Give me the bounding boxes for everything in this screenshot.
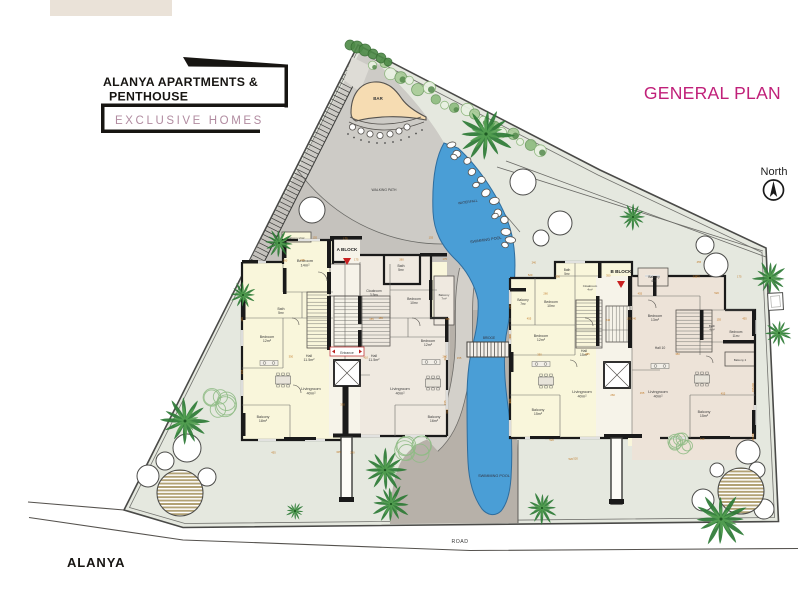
svg-text:240: 240 <box>350 450 355 454</box>
svg-text:18m²: 18m² <box>259 419 268 423</box>
svg-text:305: 305 <box>240 369 244 374</box>
svg-text:BRIDGE: BRIDGE <box>483 336 495 340</box>
svg-text:A BLOCK: A BLOCK <box>337 247 358 252</box>
svg-text:ALANYA APARTMENTS &: ALANYA APARTMENTS & <box>103 75 258 89</box>
svg-text:455: 455 <box>742 316 747 320</box>
svg-text:175: 175 <box>343 236 348 240</box>
svg-text:240: 240 <box>300 258 305 262</box>
svg-text:Entrance: Entrance <box>340 351 354 355</box>
svg-text:155: 155 <box>429 235 434 239</box>
svg-text:GENERAL PLAN: GENERAL PLAN <box>644 83 781 103</box>
svg-text:14m²: 14m² <box>300 263 310 268</box>
svg-text:EXCLUSIVE HOMES: EXCLUSIVE HOMES <box>115 115 264 127</box>
svg-text:455: 455 <box>527 317 532 321</box>
svg-text:260: 260 <box>399 257 404 261</box>
svg-text:PENTHOUSE: PENTHOUSE <box>109 90 188 104</box>
svg-text:350: 350 <box>606 273 611 277</box>
svg-text:240: 240 <box>532 261 537 265</box>
svg-text:305: 305 <box>585 352 590 356</box>
svg-text:Hall 10: Hall 10 <box>655 346 666 350</box>
svg-text:40m²: 40m² <box>395 391 405 396</box>
svg-text:10m²: 10m² <box>547 304 556 308</box>
svg-text:ALANYA: ALANYA <box>67 555 125 570</box>
svg-text:175: 175 <box>354 257 359 261</box>
svg-text:40m²: 40m² <box>577 394 587 399</box>
svg-text:7m²: 7m² <box>441 297 446 301</box>
svg-text:WALKING PATH: WALKING PATH <box>372 188 398 192</box>
svg-text:305: 305 <box>336 450 341 454</box>
svg-text:North: North <box>761 166 788 178</box>
svg-text:260: 260 <box>610 393 615 397</box>
svg-text:BAR: BAR <box>373 96 383 101</box>
svg-text:155: 155 <box>312 235 317 239</box>
svg-text:350: 350 <box>289 354 294 358</box>
svg-text:ROAD: ROAD <box>452 539 469 545</box>
svg-text:155: 155 <box>627 317 632 321</box>
svg-text:240: 240 <box>508 304 512 309</box>
svg-text:240: 240 <box>751 383 755 388</box>
svg-text:Balcony 2: Balcony 2 <box>734 358 747 362</box>
svg-text:12m²: 12m² <box>424 343 433 347</box>
svg-text:155: 155 <box>240 317 244 322</box>
svg-text:10m²: 10m² <box>410 301 419 305</box>
svg-text:40m²: 40m² <box>306 391 316 396</box>
svg-text:15m²: 15m² <box>534 412 543 416</box>
svg-text:455: 455 <box>697 260 702 264</box>
svg-text:155: 155 <box>751 433 755 438</box>
svg-text:155: 155 <box>443 400 447 405</box>
svg-text:520: 520 <box>528 273 533 277</box>
svg-text:5m²: 5m² <box>564 272 570 276</box>
svg-text:240: 240 <box>632 316 637 320</box>
svg-text:155: 155 <box>378 316 383 320</box>
svg-text:305: 305 <box>693 275 698 279</box>
svg-text:260: 260 <box>283 258 288 262</box>
svg-text:11.5m²: 11.5m² <box>304 358 316 362</box>
svg-text:350: 350 <box>340 402 345 406</box>
svg-text:16m²: 16m² <box>430 419 439 423</box>
svg-text:155: 155 <box>717 317 722 321</box>
svg-text:350: 350 <box>537 353 542 357</box>
svg-text:13m²: 13m² <box>651 318 660 322</box>
svg-text:7m²: 7m² <box>520 302 526 306</box>
svg-text:4m²: 4m² <box>651 279 657 283</box>
svg-text:240: 240 <box>508 334 512 339</box>
svg-text:155: 155 <box>369 317 374 321</box>
svg-text:11m²: 11m² <box>732 334 739 338</box>
svg-text:5m²: 5m² <box>278 311 285 315</box>
svg-text:455: 455 <box>271 450 276 454</box>
svg-text:455: 455 <box>638 291 643 295</box>
svg-text:350: 350 <box>675 352 680 356</box>
svg-text:455: 455 <box>721 392 726 396</box>
svg-text:410: 410 <box>445 409 449 414</box>
svg-text:455: 455 <box>640 391 645 395</box>
svg-text:410: 410 <box>700 437 705 441</box>
svg-text:260: 260 <box>543 292 548 296</box>
svg-text:12m²: 12m² <box>263 339 272 343</box>
svg-text:155: 155 <box>457 356 462 360</box>
svg-text:175: 175 <box>442 257 447 261</box>
svg-text:4m²: 4m² <box>709 328 714 332</box>
svg-text:350: 350 <box>555 274 560 278</box>
svg-text:410: 410 <box>363 355 368 359</box>
svg-text:520: 520 <box>573 457 578 461</box>
svg-text:SWIMMING POOL: SWIMMING POOL <box>478 474 510 478</box>
svg-text:4m²: 4m² <box>587 288 592 292</box>
svg-text:15m²: 15m² <box>700 414 709 418</box>
svg-text:240: 240 <box>606 318 611 322</box>
svg-text:155: 155 <box>508 398 512 403</box>
svg-text:5m²: 5m² <box>398 268 405 272</box>
svg-text:B BLOCK: B BLOCK <box>611 269 633 274</box>
svg-text:40m²: 40m² <box>653 394 663 399</box>
svg-text:175: 175 <box>737 274 742 278</box>
svg-text:12m²: 12m² <box>537 338 546 342</box>
svg-text:520: 520 <box>549 438 554 442</box>
svg-text:410: 410 <box>443 356 447 361</box>
svg-text:155: 155 <box>445 317 450 321</box>
svg-text:11.5m²: 11.5m² <box>369 358 381 362</box>
svg-text:520: 520 <box>714 291 719 295</box>
svg-text:3.5m²: 3.5m² <box>370 293 378 297</box>
